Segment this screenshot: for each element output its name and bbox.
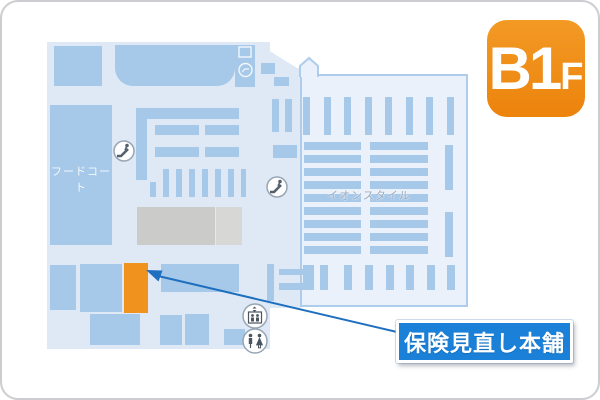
shelf-block — [303, 97, 310, 135]
map-block — [202, 169, 208, 197]
shelf-block — [406, 97, 413, 135]
shelf-block — [447, 97, 454, 135]
shelf-block — [324, 97, 331, 135]
shelf-block — [344, 97, 351, 135]
map-block — [189, 169, 195, 197]
shelf-block — [304, 233, 361, 241]
map-block — [205, 147, 239, 157]
shelf-block — [365, 97, 372, 135]
map-block — [155, 125, 199, 135]
floor-badge: B1 F — [487, 20, 585, 117]
cart-station-block — [235, 45, 255, 87]
highlighted-store-block — [124, 263, 148, 313]
map-block — [145, 108, 239, 119]
shelf-block — [445, 212, 453, 257]
shelf-block — [370, 155, 428, 163]
shelf-block — [447, 265, 455, 290]
shelf-block — [370, 246, 428, 254]
shelf-block — [320, 265, 328, 290]
shelf-block — [344, 265, 352, 290]
store-block — [185, 314, 209, 345]
map-block — [261, 63, 275, 74]
shelf-block — [386, 265, 394, 290]
shelf-block — [406, 265, 414, 290]
store-callout: 保険見直し本舗 — [396, 320, 573, 363]
map-block — [273, 145, 297, 158]
shelf-block — [370, 142, 428, 150]
shelf-block — [370, 220, 428, 228]
map-block — [176, 169, 182, 197]
store-block — [80, 264, 122, 312]
map-block — [267, 264, 274, 301]
anchor-store-label: イオンスタイル — [324, 187, 414, 203]
shelf-block — [370, 207, 428, 215]
map-block — [272, 99, 279, 132]
shelf-block — [445, 145, 453, 190]
map-block — [205, 125, 239, 135]
shelf-block — [304, 246, 361, 254]
shelf-block — [385, 97, 392, 135]
map-block — [155, 147, 199, 157]
store-callout-label: 保険見直し本舗 — [404, 326, 565, 358]
map-block — [241, 169, 246, 197]
floor-badge-main: B1 — [489, 39, 560, 99]
gray-block — [137, 207, 215, 245]
shelf-block — [303, 265, 314, 290]
food-court-label: フードコート — [50, 163, 112, 195]
gray-block — [216, 207, 242, 245]
shelf-block — [427, 265, 435, 290]
shelf-block — [365, 265, 373, 290]
floor-map-card: フードコート イオンスタイル — [0, 0, 600, 400]
shelf-block — [304, 220, 361, 228]
shelf-block — [304, 155, 361, 163]
map-block — [215, 169, 221, 197]
map-block — [274, 77, 289, 86]
shelf-block — [304, 207, 361, 215]
map-block — [228, 169, 234, 197]
shelf-block — [304, 142, 361, 150]
shelf-block — [370, 168, 428, 176]
shelf-block — [426, 97, 433, 135]
map-block — [285, 99, 292, 132]
store-block — [90, 314, 140, 345]
map-block — [115, 45, 235, 86]
store-block — [161, 264, 239, 292]
map-block — [54, 46, 102, 86]
store-block — [224, 329, 245, 345]
floor-badge-suffix: F — [560, 58, 583, 96]
shelf-block — [370, 233, 428, 241]
shelf-block — [304, 168, 361, 176]
store-block — [50, 265, 76, 310]
map-block — [150, 182, 156, 197]
store-block — [160, 315, 182, 345]
map-block — [163, 169, 169, 197]
